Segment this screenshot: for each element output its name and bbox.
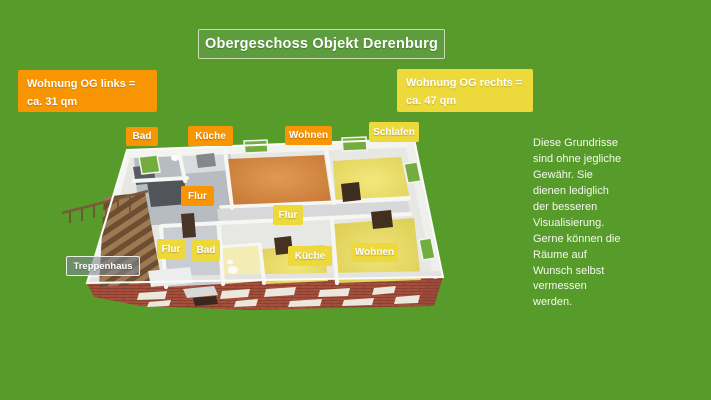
disclaimer-text: Diese Grundrisse sind ohne jegliche Gewä… xyxy=(533,136,658,311)
room-label-wohnen-links: Wohnen xyxy=(285,126,332,145)
apartment-right-box: Wohnung OG rechts = ca. 47 qm xyxy=(397,69,533,112)
room-label-wohnen-unten: Wohnen xyxy=(351,243,398,262)
room-label-kueche-links: Küche xyxy=(188,126,233,146)
room-label-schlafen: Schlafen xyxy=(369,122,419,142)
apartment-left-line2: ca. 31 qm xyxy=(27,93,148,111)
page-title-text: Obergeschoss Objekt Derenburg xyxy=(205,36,438,52)
floorplan-page: Obergeschoss Objekt Derenburg Wohnung OG… xyxy=(0,0,711,400)
toilet-links xyxy=(171,155,179,161)
floor-wohnen-links xyxy=(226,155,331,206)
room-label-flur-links: Flur xyxy=(181,186,214,206)
apartment-left-line1: Wohnung OG links = xyxy=(27,75,148,93)
apartment-left-box: Wohnung OG links = ca. 31 qm xyxy=(18,70,157,112)
toilet-unten xyxy=(228,266,238,274)
room-label-treppenhaus: Treppenhaus xyxy=(66,256,140,276)
room-label-kueche-unten: Küche xyxy=(288,246,332,266)
room-label-flur-mitte: Flur xyxy=(273,205,303,225)
window-bad-links-icon xyxy=(139,155,160,174)
kitchen-unit xyxy=(196,153,216,168)
window-schlafen-icon xyxy=(342,137,367,151)
apartment-right-line2: ca. 47 qm xyxy=(406,92,524,110)
room-label-bad-unten: Bad xyxy=(192,240,220,261)
apartment-right-line1: Wohnung OG rechts = xyxy=(406,74,524,92)
room-label-flur-unten: Flur xyxy=(157,239,185,259)
window-kueche-links-icon xyxy=(244,140,268,153)
page-title: Obergeschoss Objekt Derenburg xyxy=(198,29,445,59)
room-label-bad-links: Bad xyxy=(126,127,158,146)
